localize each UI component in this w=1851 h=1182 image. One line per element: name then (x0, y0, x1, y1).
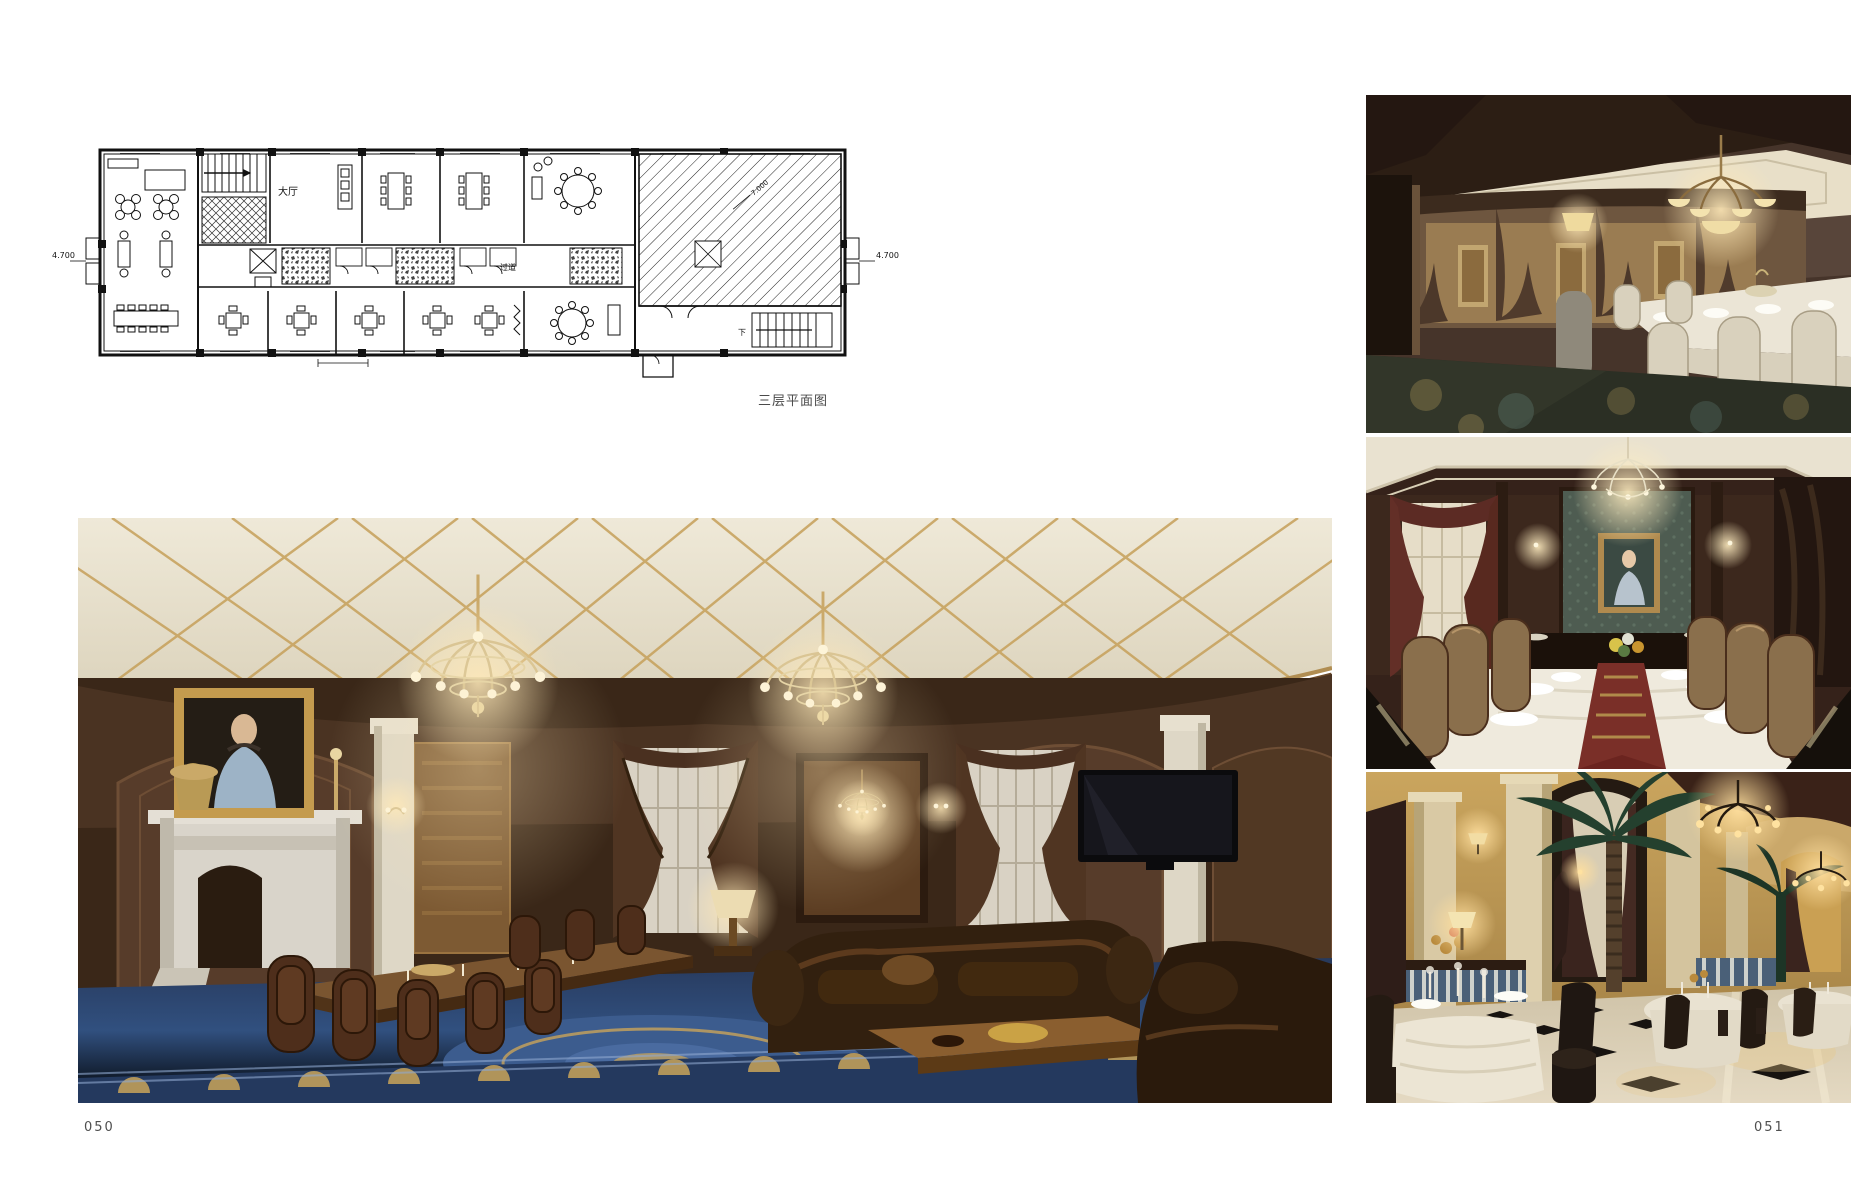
vip-dining-lounge-photo (78, 518, 1332, 1103)
grand-restaurant-hall-photo (1366, 772, 1851, 1103)
left-page-number: 050 (84, 1120, 115, 1135)
crystal-chandelier (1573, 437, 1683, 547)
plan-entrance (318, 355, 673, 377)
floor-plan-drawing: 大厅 过道 (50, 145, 910, 380)
plan-corridor-label: 过道 (500, 262, 516, 272)
plan-hall-label: 大厅 (278, 185, 298, 198)
plan-dim-left: 4.700 (52, 251, 75, 260)
armchair-right (1137, 941, 1332, 1103)
table-lamp (1428, 890, 1496, 958)
window-right (956, 743, 1086, 933)
floor-plan-caption: 三层平面图 (758, 390, 878, 409)
right-page-number: 051 (1754, 1120, 1785, 1135)
private-dining-long-table-photo (1366, 95, 1851, 433)
candle-sconce (1560, 852, 1601, 893)
book-spread: 大厅 过道 (0, 0, 1851, 1182)
private-dining-portrait-room-photo (1366, 437, 1851, 769)
wall-sconce (1450, 808, 1506, 864)
plan-dim-right: 4.700 (876, 251, 899, 260)
tv-screen (1078, 770, 1238, 870)
plan-stair-down-label: 下 (738, 328, 746, 337)
lamp-shade (1548, 193, 1608, 253)
